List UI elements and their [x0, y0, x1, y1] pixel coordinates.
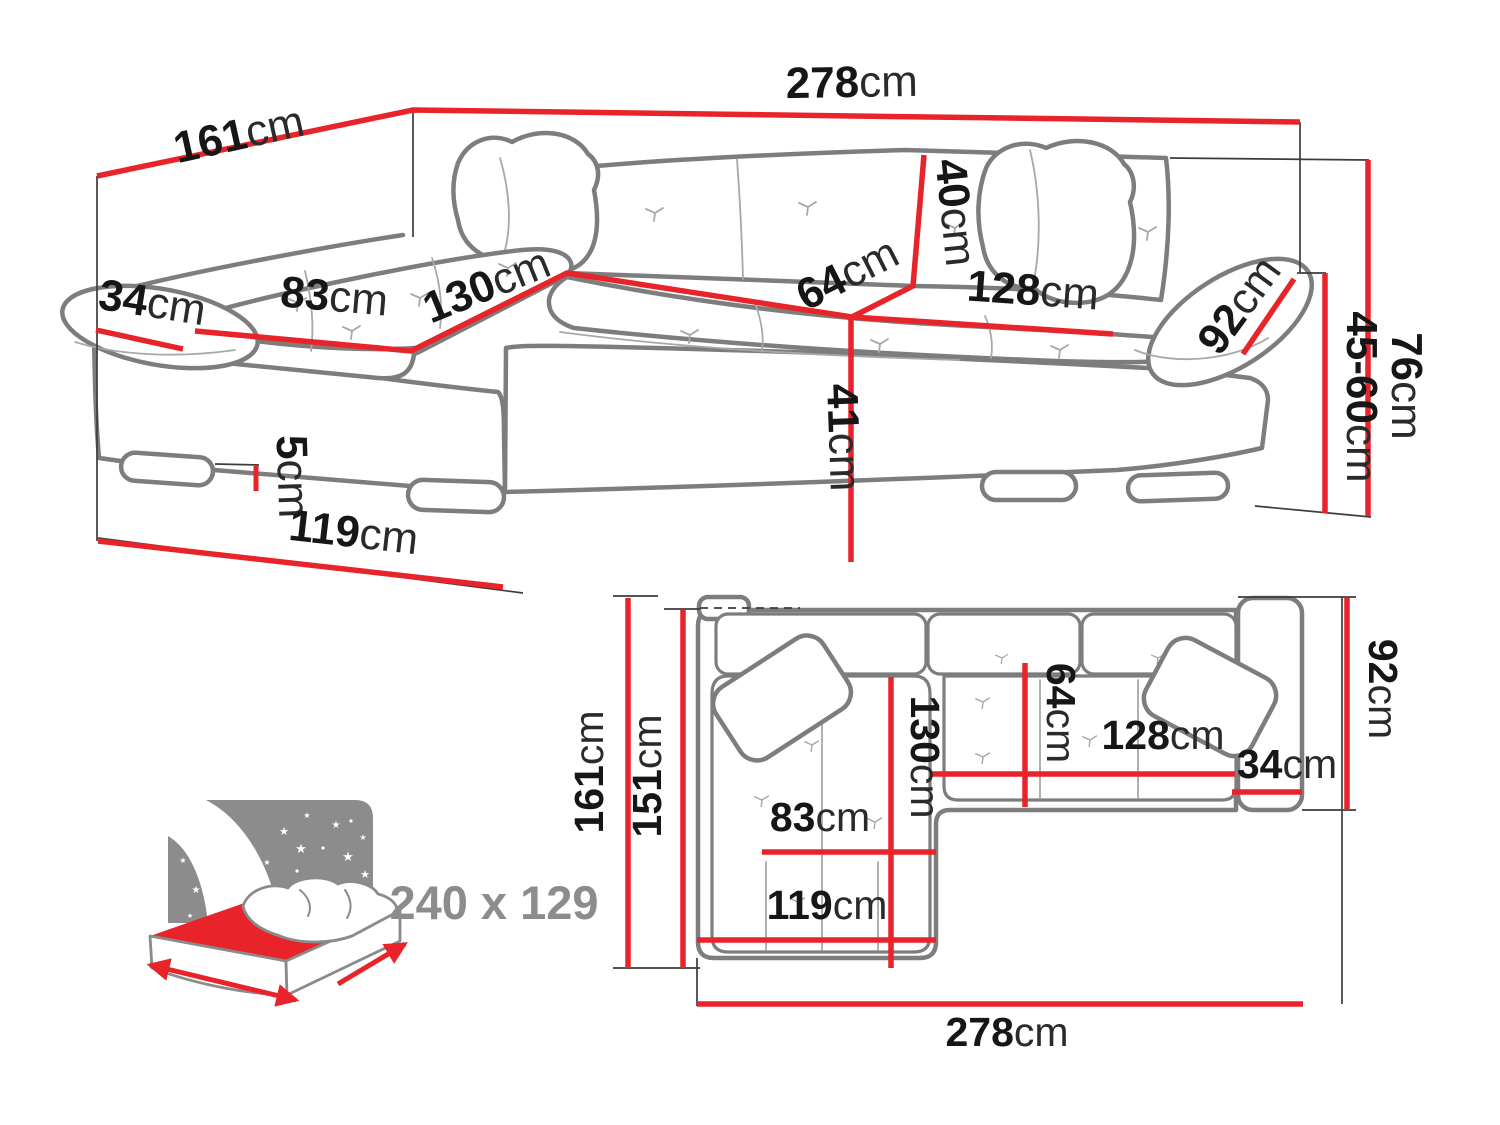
star-icon: ★	[221, 868, 233, 883]
diagram-canvas: 161cm 278cm 34cm 83cm 130cm 64cm 40cm 12…	[0, 0, 1500, 1125]
dim-seat-width: 128cm	[965, 261, 1100, 319]
star-icon: ★	[332, 820, 341, 831]
star-icon: ★	[263, 858, 270, 867]
star-icon: ★	[295, 842, 307, 857]
plan-dim-chaise-length: 130cm	[902, 695, 948, 818]
dim-total-height: 76cm	[1382, 332, 1431, 440]
star-icon: ★	[359, 833, 366, 842]
sofa-leg	[982, 472, 1076, 500]
star-icon: ★	[187, 912, 193, 920]
star-icon: ★	[279, 825, 289, 838]
star-icon: ★	[208, 815, 220, 830]
plan-dim-seat-width: 128cm	[1101, 712, 1224, 758]
plan-dim-depth-inner: 151cm	[624, 714, 670, 837]
sofa-leg	[120, 452, 214, 486]
perspective-view: 161cm 278cm 34cm 83cm 130cm 64cm 40cm 12…	[56, 57, 1431, 593]
dim-seat-height: 45-60cm	[1337, 311, 1386, 482]
plan-dim-total-width: 278cm	[945, 1009, 1068, 1055]
dim-chaise-seat-width: 83cm	[279, 267, 390, 325]
dim-total-depth: 161cm	[169, 97, 309, 173]
sleeping-function-icon: ★ ★ ★ ★ ★ ★ ★ ★ ★ ★ ★ ★ ★ ★ ★ ★ ★ ★ ★ ★	[150, 800, 599, 1000]
night-sky-panel-small	[168, 836, 208, 923]
plan-dim-chaise-seat-width: 83cm	[770, 794, 870, 840]
plan-dim-seat-depth: 64cm	[1038, 663, 1084, 763]
plan-dim-armrest-length: 92cm	[1360, 639, 1406, 739]
star-icon: ★	[342, 850, 354, 865]
sofa-perspective-drawing	[56, 133, 1333, 513]
sofa-dimensions-diagram: 161cm 278cm 34cm 83cm 130cm 64cm 40cm 12…	[0, 0, 1500, 1125]
star-icon: ★	[303, 811, 310, 820]
dim-base-height: 41cm	[817, 383, 870, 492]
dim-total-width: 278cm	[785, 57, 918, 108]
plan-dim-chaise-outer-length: 119cm	[767, 882, 888, 928]
sleeping-size-label: 240 x 129	[389, 876, 598, 929]
plan-view: 161cm 151cm 130cm 64cm 128cm 34cm 92cm 8…	[566, 596, 1406, 1055]
star-icon: ★	[239, 842, 247, 852]
star-icon: ★	[360, 868, 370, 881]
star-icon: ★	[179, 856, 186, 865]
star-icon: ★	[192, 885, 201, 896]
sofa-leg	[1128, 472, 1229, 501]
sofa-leg	[408, 479, 505, 512]
star-icon: ★	[207, 899, 214, 908]
plan-dim-depth-total: 161cm	[566, 710, 612, 833]
plan-dim-armrest-width: 34cm	[1237, 741, 1337, 787]
dim-chaise-outer-length: 119cm	[286, 501, 420, 564]
